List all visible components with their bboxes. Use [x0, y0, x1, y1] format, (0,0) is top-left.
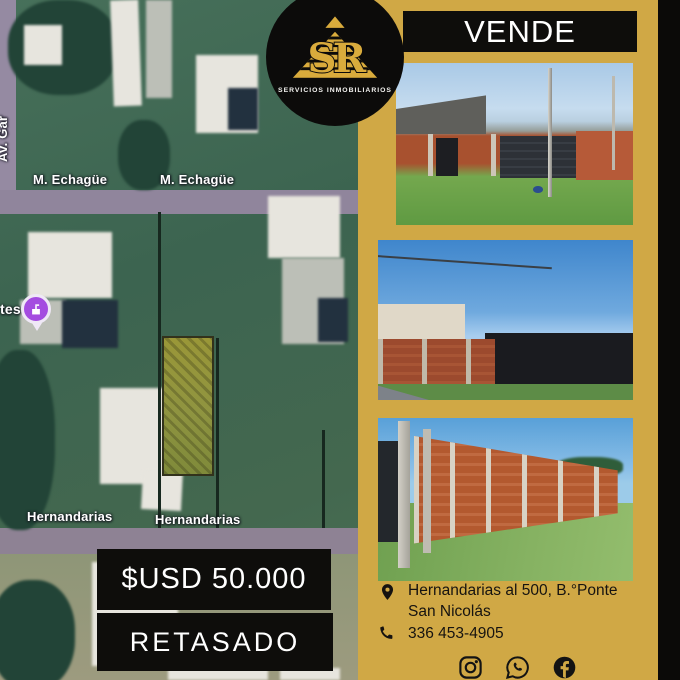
real-estate-flyer: M. Echagüe M. Echagüe Hernandarias Herna…	[0, 0, 680, 680]
address-line1: Hernandarias al 500, B.°Ponte	[408, 580, 618, 601]
whatsapp-icon[interactable]	[504, 654, 531, 680]
instagram-icon[interactable]	[457, 654, 484, 680]
social-icons-row	[378, 654, 656, 680]
street-label-hernandarias: Hernandarias	[155, 512, 241, 527]
map-roof	[28, 232, 112, 298]
map-roof	[228, 88, 258, 130]
photo1-post	[491, 134, 496, 176]
photo1-pole	[612, 76, 615, 170]
map-trees	[0, 350, 55, 530]
photo1-pole	[548, 68, 553, 198]
map-roof	[62, 300, 118, 348]
building-pin-icon	[21, 294, 51, 324]
map-fence-line	[158, 212, 161, 528]
phone-icon	[378, 623, 408, 647]
facebook-icon[interactable]	[551, 654, 578, 680]
photo2-brick-wall	[378, 339, 495, 389]
photo2-wire	[378, 255, 551, 269]
address-text: Hernandarias al 500, B.°Ponte San Nicolá…	[408, 580, 618, 622]
address-line2: San Nicolás	[408, 601, 618, 622]
photo3-post	[423, 429, 431, 553]
vende-label: VENDE	[464, 14, 576, 50]
street-label-hernandarias: Hernandarias	[27, 509, 113, 524]
map-roof	[24, 25, 62, 65]
photo1-post	[428, 134, 433, 176]
photo1-brick-wall	[576, 131, 633, 180]
highlighted-property-lot	[162, 336, 214, 476]
photo1-roof	[396, 95, 486, 134]
building-glyph	[28, 302, 44, 316]
address-row: Hernandarias al 500, B.°Ponte San Nicolá…	[378, 580, 656, 622]
photo1-dark-wall	[500, 136, 576, 178]
map-roof	[146, 0, 172, 98]
street-label-echague: M. Echagüe	[33, 172, 107, 187]
photo1-debris	[533, 186, 542, 192]
status-label: RETASADO	[130, 627, 301, 658]
phone-number: 336 453-4905	[408, 623, 504, 644]
map-fence-line	[216, 338, 219, 528]
vende-banner: VENDE	[403, 11, 637, 52]
property-photo-3	[378, 418, 633, 581]
phone-row: 336 453-4905	[378, 623, 656, 647]
street-label-echague: M. Echagüe	[160, 172, 234, 187]
price-banner: $USD 50.000	[97, 549, 331, 610]
property-photo-2	[378, 240, 633, 400]
logo-subtitle: SERVICIOS INMOBILIARIOS	[278, 87, 392, 94]
photo1-door	[436, 138, 457, 177]
photo3-post	[398, 421, 409, 568]
price-label: $USD 50.000	[121, 563, 306, 596]
map-roof	[268, 196, 340, 258]
photo2-dark-wall	[485, 333, 633, 389]
map-roof	[318, 298, 348, 342]
poi-label-partial: tes	[0, 301, 21, 317]
location-pin-icon	[378, 580, 408, 608]
logo-badge: SR SERVICIOS INMOBILIARIOS	[266, 0, 404, 126]
right-black-strip	[658, 0, 680, 680]
stepped-pyramid-icon: SR	[287, 16, 383, 84]
map-trees	[0, 580, 75, 680]
contact-block: Hernandarias al 500, B.°Ponte San Nicolá…	[378, 580, 656, 680]
map-fence-line	[322, 430, 325, 528]
status-banner: RETASADO	[97, 613, 333, 671]
property-photo-1	[396, 63, 633, 225]
street-label-side: Av. Gar	[0, 92, 10, 162]
map-roof	[110, 0, 142, 106]
logo-initials: SR	[308, 34, 367, 82]
